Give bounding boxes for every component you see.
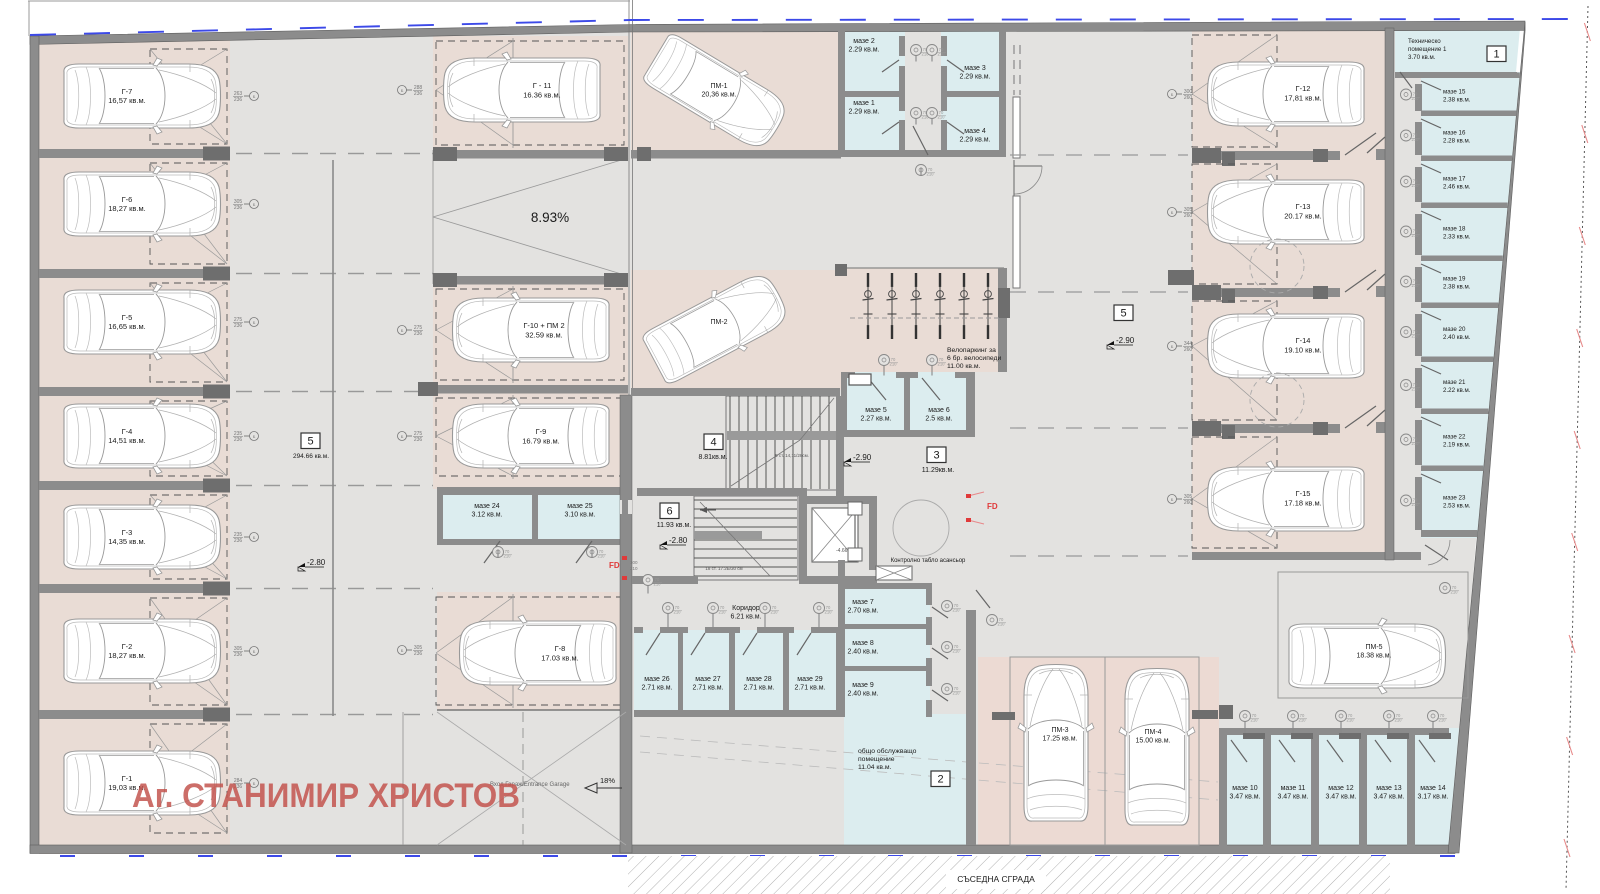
svg-text:210: 210 (674, 610, 682, 615)
svg-text:помещение 1: помещение 1 (1408, 46, 1447, 53)
svg-text:9 ст. 14,11/28см.: 9 ст. 14,11/28см. (775, 453, 809, 458)
svg-text:210: 210 (1451, 590, 1459, 595)
svg-text:Г-3: Г-3 (122, 528, 133, 537)
svg-text:мазе 1: мазе 1 (853, 100, 875, 107)
svg-text:ПМ-5: ПМ-5 (1365, 644, 1382, 651)
svg-text:3.10 кв.м.: 3.10 кв.м. (564, 512, 595, 519)
svg-text:210: 210 (998, 622, 1006, 627)
svg-text:6: 6 (666, 506, 672, 518)
svg-text:11.93 кв.м.: 11.93 кв.м. (657, 522, 691, 529)
svg-text:2.40 кв.м.: 2.40 кв.м. (847, 649, 878, 656)
svg-text:мазе 23: мазе 23 (1443, 495, 1466, 502)
svg-text:16.79 кв.м.: 16.79 кв.м. (522, 437, 559, 446)
svg-text:14,51 кв.м.: 14,51 кв.м. (108, 436, 145, 445)
svg-text:-2.80: -2.80 (307, 558, 326, 567)
svg-text:2.38 кв.м.: 2.38 кв.м. (1443, 284, 1471, 291)
svg-text:мазе 3: мазе 3 (964, 65, 986, 72)
svg-text:210: 210 (1412, 183, 1420, 188)
svg-text:2.71 кв.м.: 2.71 кв.м. (692, 685, 723, 692)
svg-text:294.66 кв.м.: 294.66 кв.м. (293, 453, 329, 460)
svg-text:мазе 28: мазе 28 (746, 676, 771, 683)
svg-text:18 ст. 17.2Ь/30 см: 18 ст. 17.2Ь/30 см (705, 566, 742, 571)
svg-text:Б: Б (253, 94, 256, 99)
svg-text:Б: Б (401, 648, 404, 653)
svg-text:Коридор: Коридор (732, 605, 760, 612)
svg-text:5: 5 (1120, 308, 1126, 320)
svg-text:мазе 4: мазе 4 (964, 128, 986, 135)
svg-text:236: 236 (414, 91, 423, 97)
svg-text:мазе 16: мазе 16 (1443, 130, 1466, 137)
svg-text:210: 210 (630, 566, 638, 571)
svg-text:-2.90: -2.90 (853, 453, 872, 462)
svg-text:Техническо: Техническо (1408, 38, 1441, 45)
svg-text:11.04 кв.м.: 11.04 кв.м. (858, 764, 892, 771)
svg-text:мазе 24: мазе 24 (474, 503, 499, 510)
svg-text:Г-12: Г-12 (1296, 84, 1311, 93)
svg-text:2.40 кв.м.: 2.40 кв.м. (847, 691, 878, 698)
svg-text:2: 2 (937, 774, 943, 786)
svg-text:Г-7: Г-7 (122, 87, 133, 96)
svg-text:210: 210 (1395, 718, 1403, 723)
svg-text:210: 210 (598, 554, 606, 559)
svg-text:2.71 кв.м.: 2.71 кв.м. (641, 685, 672, 692)
svg-text:210: 210 (825, 610, 833, 615)
svg-text:17.18 кв.м.: 17.18 кв.м. (1284, 499, 1321, 508)
svg-text:236: 236 (414, 437, 423, 443)
svg-text:2.29 кв.м.: 2.29 кв.м. (959, 137, 990, 144)
svg-text:ПМ-4: ПМ-4 (1144, 729, 1161, 736)
svg-text:100: 100 (630, 560, 638, 565)
svg-text:2.71 кв.м.: 2.71 кв.м. (794, 685, 825, 692)
svg-text:мазе 22: мазе 22 (1443, 434, 1466, 441)
svg-text:мазе 14: мазе 14 (1420, 785, 1445, 792)
svg-text:17.25 кв.м.: 17.25 кв.м. (1043, 736, 1078, 743)
svg-text:ПМ-3: ПМ-3 (1051, 727, 1068, 734)
svg-text:210: 210 (1412, 233, 1420, 238)
svg-text:210: 210 (719, 610, 727, 615)
svg-text:2.38 кв.м.: 2.38 кв.м. (1443, 97, 1471, 104)
svg-text:мазе 10: мазе 10 (1232, 785, 1257, 792)
svg-text:3.47 кв.м.: 3.47 кв.м. (1277, 794, 1308, 801)
svg-text:Г-2: Г-2 (122, 642, 133, 651)
svg-text:Б: Б (1171, 497, 1174, 502)
svg-text:260: 260 (1184, 500, 1193, 506)
svg-text:2.29 кв.м.: 2.29 кв.м. (848, 47, 879, 54)
svg-text:11.29кв.м.: 11.29кв.м. (922, 467, 955, 474)
svg-text:210: 210 (953, 649, 961, 654)
svg-text:11.00 кв.м.: 11.00 кв.м. (947, 363, 981, 370)
svg-text:210: 210 (953, 691, 961, 696)
svg-text:14,35 кв.м.: 14,35 кв.м. (108, 537, 145, 546)
svg-text:2.27 кв.м.: 2.27 кв.м. (860, 416, 891, 423)
svg-text:мазе 25: мазе 25 (567, 503, 592, 510)
svg-text:3.70 кв.м.: 3.70 кв.м. (1408, 54, 1436, 61)
svg-text:-2.80: -2.80 (669, 536, 688, 545)
svg-text:3: 3 (933, 450, 939, 462)
svg-text:16.36 кв.м.: 16.36 кв.м. (523, 91, 560, 100)
svg-text:мазе 18: мазе 18 (1443, 226, 1466, 233)
svg-text:Б: Б (401, 328, 404, 333)
svg-text:Г-9: Г-9 (536, 427, 547, 436)
svg-text:236: 236 (414, 331, 423, 337)
svg-text:6.21 кв.м.: 6.21 кв.м. (730, 614, 761, 621)
svg-text:Б: Б (253, 202, 256, 207)
svg-text:15.00 кв.м.: 15.00 кв.м. (1136, 738, 1171, 745)
svg-text:20.17 кв.м.: 20.17 кв.м. (1284, 212, 1321, 221)
svg-text:17.03 кв.м.: 17.03 кв.м. (541, 654, 578, 663)
svg-text:210: 210 (1412, 96, 1420, 101)
svg-text:Б: Б (1171, 210, 1174, 215)
svg-text:2.28 кв.м.: 2.28 кв.м. (1443, 138, 1471, 145)
svg-text:210: 210 (1299, 718, 1307, 723)
svg-text:210: 210 (1412, 502, 1420, 507)
svg-text:3.47 кв.м.: 3.47 кв.м. (1229, 794, 1260, 801)
svg-text:Г-15: Г-15 (1296, 489, 1311, 498)
svg-text:210: 210 (938, 52, 946, 57)
svg-text:236: 236 (234, 205, 243, 211)
svg-text:мазе 8: мазе 8 (852, 640, 874, 647)
svg-text:Г-5: Г-5 (122, 313, 133, 322)
svg-text:210: 210 (890, 362, 898, 367)
svg-text:3.47 кв.м.: 3.47 кв.м. (1373, 794, 1404, 801)
svg-text:6 бр. велосипеди: 6 бр. велосипеди (947, 354, 1002, 362)
svg-text:236: 236 (234, 538, 243, 544)
svg-text:помещение: помещение (858, 756, 895, 763)
svg-text:2.40 кв.м.: 2.40 кв.м. (1443, 334, 1471, 341)
svg-text:5: 5 (307, 436, 313, 448)
svg-text:210: 210 (1412, 387, 1420, 392)
svg-text:Велопаркинг за: Велопаркинг за (947, 347, 996, 354)
svg-text:Б: Б (401, 434, 404, 439)
svg-text:FD: FD (609, 561, 620, 570)
svg-text:2.5 кв.м.: 2.5 кв.м. (925, 416, 952, 423)
svg-text:2.46 кв.м.: 2.46 кв.м. (1443, 184, 1471, 191)
svg-text:мазе 11: мазе 11 (1281, 785, 1306, 792)
svg-text:2.22 кв.м.: 2.22 кв.м. (1443, 387, 1471, 394)
svg-text:210: 210 (927, 172, 935, 177)
svg-text:1: 1 (1493, 49, 1499, 61)
svg-text:2.29 кв.м.: 2.29 кв.м. (959, 74, 990, 81)
svg-text:мазе 12: мазе 12 (1328, 785, 1353, 792)
svg-text:210: 210 (1251, 718, 1259, 723)
svg-text:210: 210 (953, 608, 961, 613)
svg-text:4: 4 (710, 437, 716, 449)
svg-text:Г-8: Г-8 (555, 644, 566, 653)
svg-text:210: 210 (654, 582, 662, 587)
svg-text:210: 210 (504, 554, 512, 559)
svg-text:мазе 29: мазе 29 (797, 676, 822, 683)
svg-text:210: 210 (1412, 334, 1420, 339)
svg-text:Г-13: Г-13 (1296, 202, 1311, 211)
svg-text:СЪСЕДНА СГРАДА: СЪСЕДНА СГРАДА (957, 874, 1035, 884)
svg-text:Б: Б (253, 649, 256, 654)
svg-text:мазе 17: мазе 17 (1443, 176, 1466, 183)
svg-text:210: 210 (1412, 137, 1420, 142)
svg-text:мазе 13: мазе 13 (1376, 785, 1401, 792)
svg-text:2.19 кв.м.: 2.19 кв.м. (1443, 442, 1471, 449)
svg-text:210: 210 (1412, 283, 1420, 288)
svg-text:мазе 19: мазе 19 (1443, 276, 1466, 283)
svg-text:мазе 5: мазе 5 (865, 407, 887, 414)
svg-text:ПМ-1: ПМ-1 (710, 83, 727, 90)
svg-text:Б: Б (253, 320, 256, 325)
svg-text:260: 260 (1184, 213, 1193, 219)
svg-text:Б: Б (1171, 92, 1174, 97)
svg-text:Г-6: Г-6 (122, 195, 133, 204)
svg-text:мазе 20: мазе 20 (1443, 326, 1466, 333)
svg-text:Б: Б (401, 88, 404, 93)
svg-text:Г-14: Г-14 (1296, 336, 1311, 345)
svg-text:мазе 7: мазе 7 (852, 599, 874, 606)
svg-text:ПМ-2: ПМ-2 (710, 319, 727, 326)
svg-text:общо обслужващо: общо обслужващо (858, 747, 917, 755)
svg-text:Г - 11: Г - 11 (533, 81, 552, 90)
svg-text:Г-10 + ПМ 2: Г-10 + ПМ 2 (523, 321, 564, 330)
svg-text:Б: Б (253, 434, 256, 439)
svg-text:8.93%: 8.93% (531, 210, 569, 225)
svg-text:мазе 26: мазе 26 (644, 676, 669, 683)
svg-text:19.10 кв.м.: 19.10 кв.м. (1284, 346, 1321, 355)
svg-text:мазе 6: мазе 6 (928, 407, 950, 414)
svg-text:260: 260 (1184, 95, 1193, 101)
svg-text:236: 236 (234, 437, 243, 443)
svg-text:236: 236 (234, 652, 243, 658)
svg-text:210: 210 (1412, 441, 1420, 446)
svg-text:3.47 кв.м.: 3.47 кв.м. (1325, 794, 1356, 801)
svg-text:мазе 15: мазе 15 (1443, 89, 1466, 96)
svg-text:мазе 27: мазе 27 (695, 676, 720, 683)
svg-text:236: 236 (234, 97, 243, 103)
svg-text:32.59 кв.м.: 32.59 кв.м. (525, 331, 562, 340)
svg-text:210: 210 (1347, 718, 1355, 723)
svg-text:3.12 кв.м.: 3.12 кв.м. (471, 512, 502, 519)
svg-text:мазе 2: мазе 2 (853, 38, 875, 45)
svg-text:210: 210 (938, 115, 946, 120)
svg-text:18%: 18% (600, 776, 615, 785)
svg-text:Б: Б (1171, 344, 1174, 349)
svg-text:210: 210 (938, 362, 946, 367)
svg-text:Контролно табло асансьор: Контролно табло асансьор (891, 558, 966, 564)
svg-text:Г-1: Г-1 (122, 774, 133, 783)
svg-text:2.71 кв.м.: 2.71 кв.м. (743, 685, 774, 692)
svg-text:мазе 9: мазе 9 (852, 682, 874, 689)
svg-text:17,81 кв.м.: 17,81 кв.м. (1284, 94, 1321, 103)
svg-text:2.33 кв.м.: 2.33 кв.м. (1443, 234, 1471, 241)
svg-text:-2.90: -2.90 (1116, 336, 1135, 345)
svg-text:Аг. СТАНИМИР ХРИСТОВ: Аг. СТАНИМИР ХРИСТОВ (132, 777, 520, 815)
svg-text:236: 236 (234, 323, 243, 329)
svg-text:FD: FD (987, 502, 998, 511)
svg-text:Г-4: Г-4 (122, 427, 133, 436)
svg-text:260: 260 (1184, 347, 1193, 353)
svg-text:Б: Б (253, 535, 256, 540)
svg-text:2.29 кв.м.: 2.29 кв.м. (848, 109, 879, 116)
svg-text:210: 210 (771, 610, 779, 615)
svg-text:3.17 кв.м.: 3.17 кв.м. (1417, 794, 1448, 801)
svg-text:18,27 кв.м.: 18,27 кв.м. (108, 651, 145, 660)
svg-text:-4.66: -4.66 (836, 548, 848, 554)
svg-text:16,65 кв.м.: 16,65 кв.м. (108, 322, 145, 331)
svg-text:18.38 кв.м.: 18.38 кв.м. (1357, 653, 1392, 660)
svg-text:2.53 кв.м.: 2.53 кв.м. (1443, 503, 1471, 510)
svg-text:20,36 кв.м.: 20,36 кв.м. (702, 92, 737, 99)
svg-text:18,27 кв.м.: 18,27 кв.м. (108, 204, 145, 213)
svg-text:236: 236 (414, 651, 423, 657)
svg-text:210: 210 (1439, 718, 1447, 723)
svg-text:мазе 21: мазе 21 (1443, 379, 1466, 386)
svg-text:8.81кв.м.: 8.81кв.м. (698, 454, 727, 461)
svg-text:16,57 кв.м.: 16,57 кв.м. (108, 96, 145, 105)
svg-text:2.70 кв.м.: 2.70 кв.м. (847, 608, 878, 615)
